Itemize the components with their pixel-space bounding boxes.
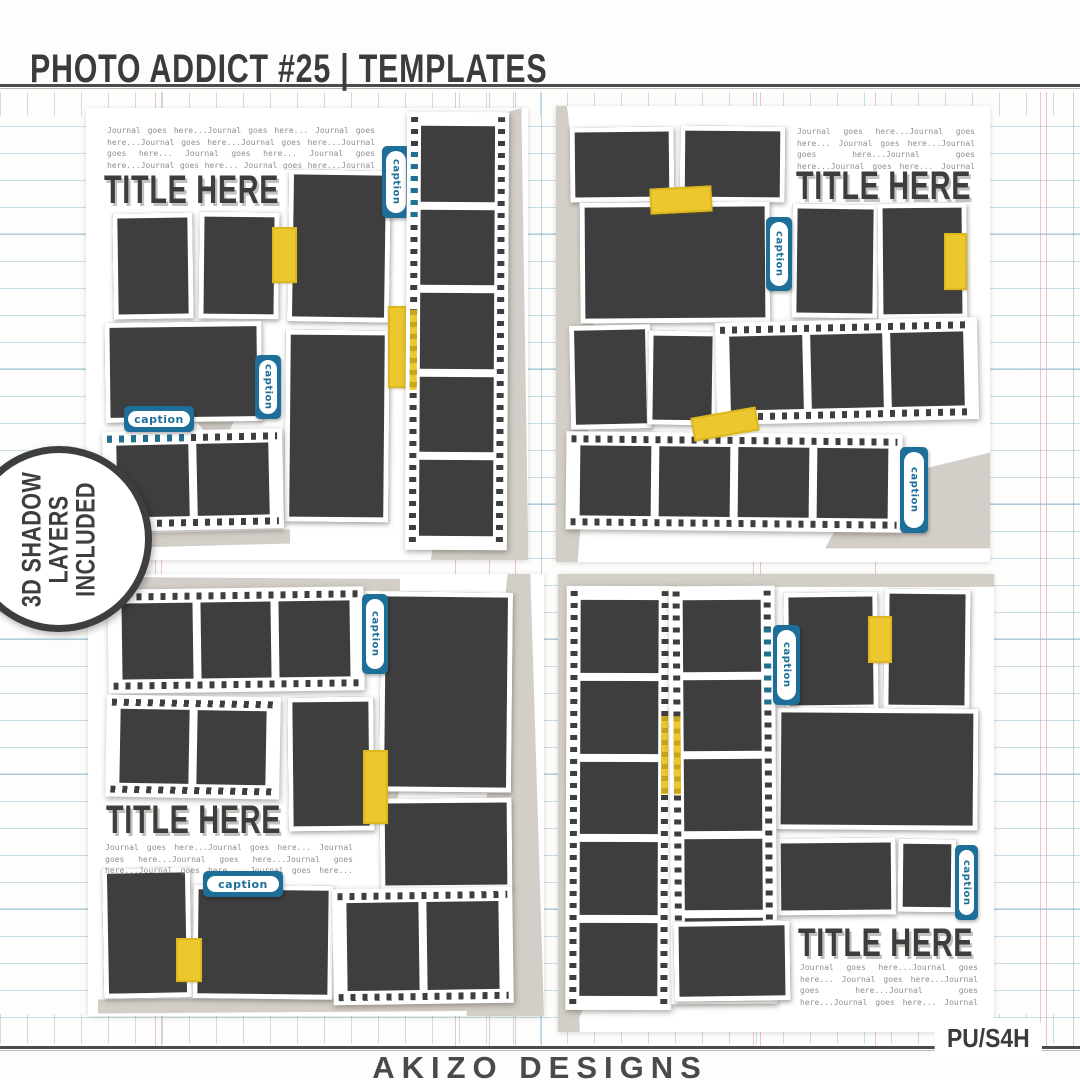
- photo-placeholder: [198, 212, 279, 320]
- margin-line: [1046, 92, 1047, 1048]
- caption-tab-vertical: caption: [362, 594, 388, 674]
- caption-tab-horizontal: caption: [124, 406, 194, 432]
- film-strip-vertical: [405, 112, 509, 551]
- film-frame: [817, 448, 889, 519]
- washi-tape: [944, 233, 967, 290]
- film-frame: [580, 600, 658, 673]
- film-frame: [579, 923, 657, 996]
- template-title: TITLE HERE: [104, 168, 279, 213]
- film-frame: [683, 679, 761, 751]
- badge-line: 3D SHADOW: [18, 471, 45, 607]
- badge-line: INCLUDED: [72, 471, 99, 607]
- tape-through-perforations: [410, 310, 417, 390]
- photo-placeholder: [112, 212, 193, 319]
- washi-tape: [272, 227, 297, 283]
- film-frame: [121, 603, 193, 680]
- poster-canvas: PHOTO ADDICT #25 | TEMPLATES Journal goe…: [0, 0, 1080, 1080]
- tape-through-perforations: [661, 716, 668, 794]
- film-strip-horizontal: [565, 431, 902, 533]
- caption-pill: caption: [366, 599, 384, 669]
- film-frame: [580, 842, 658, 915]
- journal-placeholder-text: Journal goes here...Journal goes here...…: [800, 962, 978, 1008]
- film-frame: [420, 209, 494, 285]
- caption-tab-horizontal: caption: [203, 871, 283, 897]
- photo-placeholder: [569, 324, 652, 430]
- film-frame: [196, 442, 269, 515]
- caption-label: caption: [781, 642, 792, 688]
- film-frame: [419, 377, 493, 453]
- photo-placeholder: [380, 797, 513, 890]
- caption-label: caption: [961, 860, 972, 906]
- caption-pill: caption: [128, 411, 190, 427]
- film-frame: [580, 681, 658, 754]
- film-frame: [683, 600, 761, 672]
- film-frame: [738, 447, 810, 518]
- photo-placeholder: [791, 203, 878, 318]
- film-frame: [421, 126, 495, 202]
- film-strip-horizontal: [105, 694, 281, 799]
- grid-line: [1073, 92, 1074, 1048]
- caption-through-perforations: [411, 152, 418, 224]
- footer-rule: [0, 1046, 1080, 1049]
- caption-through-perforations: [764, 628, 772, 708]
- caption-tab-vertical: caption: [773, 625, 800, 705]
- film-frame: [420, 293, 494, 369]
- badge-rotated-text: 3D SHADOW LAYERS INCLUDED: [18, 454, 99, 624]
- caption-tab-vertical: caption: [255, 355, 281, 419]
- template-title: TITLE HERE: [796, 164, 971, 209]
- washi-tape: [649, 185, 712, 214]
- template-title: TITLE HERE: [798, 921, 973, 966]
- caption-label: caption: [218, 878, 268, 891]
- film-frame: [196, 710, 266, 785]
- caption-pill: caption: [777, 630, 796, 700]
- film-frame: [200, 602, 272, 679]
- caption-pill: caption: [259, 360, 277, 414]
- caption-label: caption: [909, 467, 920, 513]
- photo-placeholder: [673, 920, 790, 1002]
- film-strip-horizontal: [332, 887, 514, 1006]
- film-frame: [729, 335, 803, 411]
- caption-label: caption: [370, 611, 381, 657]
- template-page-3: caption TITLE HERE Journal goes here...J…: [88, 574, 544, 1016]
- film-frame: [684, 759, 762, 831]
- photo-placeholder: [883, 589, 970, 711]
- caption-pill: caption: [959, 850, 974, 915]
- caption-pill: caption: [207, 876, 279, 892]
- washi-tape: [868, 616, 892, 663]
- film-strip-horizontal: [107, 586, 364, 694]
- badge-line: LAYERS: [45, 471, 72, 607]
- film-frame: [659, 446, 731, 517]
- template-page-1: Journal goes here...Journal goes here...…: [86, 108, 528, 560]
- photo-placeholder: [287, 697, 374, 832]
- photo-placeholder: [284, 330, 390, 523]
- caption-through-perforations: [107, 434, 187, 443]
- film-frame: [119, 709, 189, 784]
- caption-label: caption: [774, 231, 785, 277]
- margin-line: [1040, 92, 1041, 1048]
- page-title: PHOTO ADDICT #25 | TEMPLATES: [30, 47, 547, 92]
- template-page-4: caption caption TITLE HERE Journal goes …: [558, 574, 994, 1032]
- washi-tape: [176, 938, 202, 982]
- photo-placeholder: [192, 884, 333, 1000]
- film-frame: [346, 902, 419, 991]
- film-strip-vertical: [565, 586, 672, 1010]
- template-title: TITLE HERE: [106, 798, 281, 843]
- tape-through-perforations: [673, 716, 681, 794]
- caption-tab-vertical: caption: [955, 845, 978, 920]
- caption-pill: caption: [904, 452, 924, 528]
- caption-pill: caption: [770, 222, 788, 286]
- caption-tab-vertical: caption: [766, 217, 792, 291]
- caption-label: caption: [263, 364, 274, 410]
- photo-placeholder: [776, 707, 979, 830]
- caption-label: caption: [391, 159, 402, 205]
- film-frame: [810, 333, 884, 409]
- film-frame: [279, 600, 351, 677]
- film-frame: [580, 445, 652, 516]
- photo-placeholder: [379, 591, 513, 792]
- journal-placeholder-text: Journal goes here...Journal goes here...…: [107, 125, 375, 171]
- caption-pill: caption: [386, 151, 406, 213]
- photo-placeholder: [647, 331, 717, 426]
- film-frame: [580, 761, 658, 834]
- film-frame: [684, 839, 762, 911]
- film-frame: [419, 460, 493, 536]
- film-frame: [426, 901, 499, 990]
- caption-label: caption: [134, 413, 184, 426]
- photo-placeholder: [287, 169, 391, 322]
- template-page-2: Journal goes here...Journal goes here...…: [556, 106, 990, 562]
- photo-placeholder: [898, 839, 957, 913]
- washi-tape: [363, 750, 388, 824]
- caption-tab-vertical: caption: [900, 447, 928, 533]
- brand-name: AKIZO DESIGNS: [0, 1050, 1080, 1080]
- film-frame: [890, 331, 964, 407]
- photo-placeholder: [776, 837, 897, 915]
- photo-placeholder: [580, 201, 771, 323]
